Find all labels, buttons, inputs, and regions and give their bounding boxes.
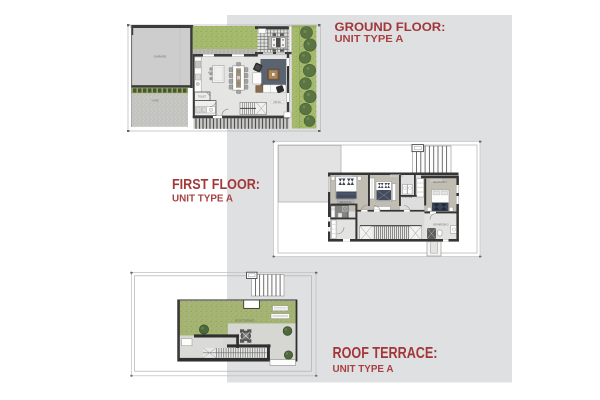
svg-text:GARAGE: GARAGE xyxy=(154,55,167,59)
svg-text:DINING: DINING xyxy=(273,101,282,104)
svg-text:BEDROOM 3: BEDROOM 3 xyxy=(433,182,448,184)
svg-text:YARD: YARD xyxy=(151,99,160,103)
svg-text:GROUND FLOOR:: GROUND FLOOR: xyxy=(335,20,446,34)
svg-text:FIRST FLOOR:: FIRST FLOOR: xyxy=(172,177,260,193)
svg-text:UNIT TYPE A: UNIT TYPE A xyxy=(172,194,234,205)
svg-text:BATHROOM 2: BATHROOM 2 xyxy=(433,224,449,227)
svg-text:ROOF TERRACE: ROOF TERRACE xyxy=(235,320,255,323)
svg-text:UNIT TYPE A: UNIT TYPE A xyxy=(333,364,395,375)
svg-text:TOILET: TOILET xyxy=(198,96,207,99)
svg-text:ROOF TERRACE:: ROOF TERRACE: xyxy=(333,345,438,362)
svg-text:UNIT TYPE A: UNIT TYPE A xyxy=(335,34,404,45)
svg-text:D.STORE: D.STORE xyxy=(403,197,413,199)
